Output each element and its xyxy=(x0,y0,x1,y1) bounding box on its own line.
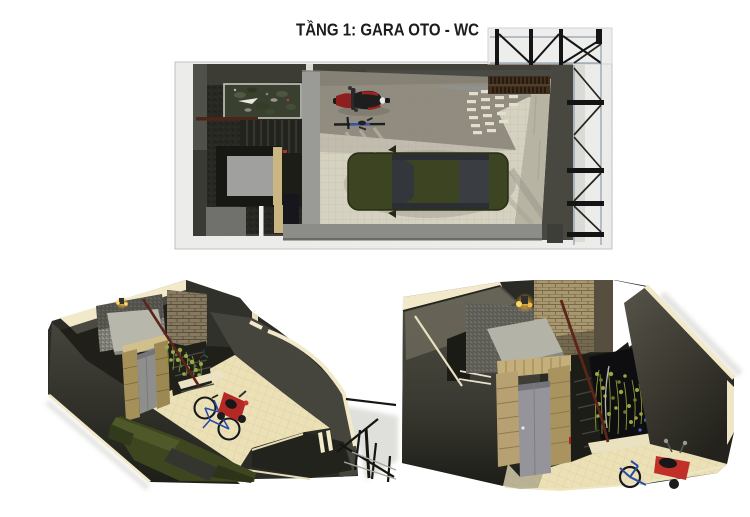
svg-text:TẦNG 1: GARA OTO - WC: TẦNG 1: GARA OTO - WC xyxy=(296,19,479,40)
